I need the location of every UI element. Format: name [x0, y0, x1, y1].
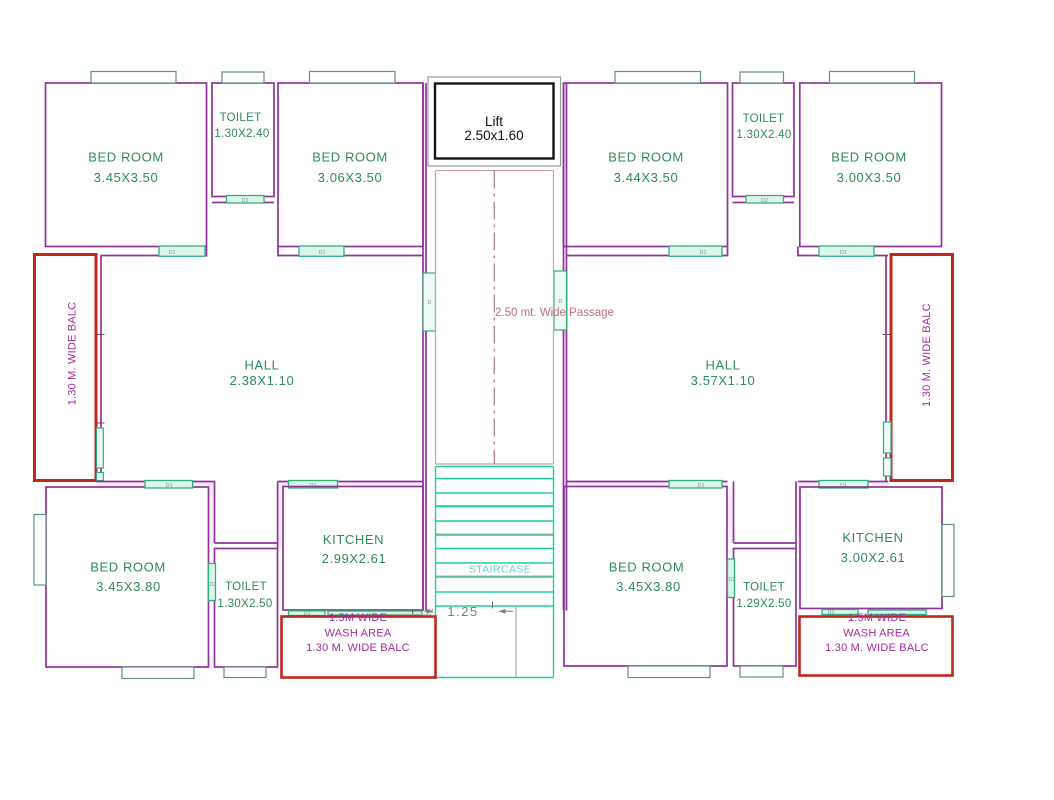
svg-text:WASH AREA: WASH AREA — [325, 628, 392, 640]
svg-text:2.99X2.61: 2.99X2.61 — [322, 551, 387, 566]
svg-text:TOILET: TOILET — [220, 112, 262, 124]
svg-text:3.45X3.50: 3.45X3.50 — [94, 170, 159, 185]
svg-text:D1: D1 — [318, 250, 325, 256]
svg-text:D2: D2 — [728, 577, 735, 583]
svg-text:1.30 M. WIDE BALC: 1.30 M. WIDE BALC — [306, 642, 410, 654]
svg-text:D1: D1 — [168, 250, 175, 256]
svg-text:1.30 M. WIDE BALC: 1.30 M. WIDE BALC — [921, 303, 933, 407]
svg-text:3.45X3.80: 3.45X3.80 — [96, 579, 161, 594]
svg-text:BED ROOM: BED ROOM — [90, 560, 166, 575]
svg-text:3.00X3.50: 3.00X3.50 — [837, 170, 902, 185]
svg-text:BED ROOM: BED ROOM — [609, 560, 685, 575]
svg-text:1.30X2.40: 1.30X2.40 — [214, 128, 269, 140]
svg-text:D2: D2 — [241, 198, 248, 204]
svg-text:1.5M WIDE: 1.5M WIDE — [848, 612, 906, 624]
svg-text:2.50 mt. Wide Passage: 2.50 mt. Wide Passage — [495, 307, 614, 319]
svg-text:3.45X3.80: 3.45X3.80 — [616, 579, 681, 594]
svg-text:STAIRCASE: STAIRCASE — [469, 564, 531, 576]
svg-text:1.30 M. WIDE BALC: 1.30 M. WIDE BALC — [67, 302, 79, 406]
svg-text:D2: D2 — [209, 582, 216, 588]
svg-text:Lift: Lift — [485, 114, 503, 129]
svg-text:TOILET: TOILET — [743, 113, 785, 125]
svg-text:HALL: HALL — [706, 358, 741, 373]
svg-text:BED ROOM: BED ROOM — [88, 150, 164, 165]
svg-text:D: D — [428, 300, 432, 306]
svg-text:3.57X1.10: 3.57X1.10 — [691, 373, 756, 388]
svg-text:KITCHEN: KITCHEN — [842, 530, 903, 545]
svg-text:D1: D1 — [840, 250, 847, 256]
svg-text:2.50x1.60: 2.50x1.60 — [464, 128, 523, 143]
svg-text:TOILET: TOILET — [225, 581, 267, 593]
svg-text:1.25: 1.25 — [447, 604, 478, 619]
svg-text:BED ROOM: BED ROOM — [831, 150, 907, 165]
svg-text:3.00X2.61: 3.00X2.61 — [841, 550, 906, 565]
svg-text:D1: D1 — [840, 483, 847, 489]
svg-text:1.30X2.40: 1.30X2.40 — [736, 129, 791, 141]
svg-text:1.5M WIDE: 1.5M WIDE — [329, 612, 387, 624]
svg-text:KITCHEN: KITCHEN — [323, 532, 384, 547]
svg-text:BED ROOM: BED ROOM — [608, 150, 684, 165]
svg-text:D2: D2 — [761, 198, 768, 204]
svg-text:HALL: HALL — [245, 358, 280, 373]
svg-text:3.06X3.50: 3.06X3.50 — [318, 170, 383, 185]
svg-text:BED ROOM: BED ROOM — [312, 150, 388, 165]
svg-text:D1: D1 — [697, 483, 704, 489]
svg-text:D2: D2 — [827, 610, 834, 616]
svg-text:1.30X2.50: 1.30X2.50 — [217, 598, 272, 610]
svg-text:D1: D1 — [165, 483, 172, 489]
svg-text:1M: 1M — [427, 609, 434, 615]
svg-text:3.44X3.50: 3.44X3.50 — [614, 170, 679, 185]
svg-text:TOILET: TOILET — [743, 582, 785, 594]
svg-text:2.38X1.10: 2.38X1.10 — [230, 373, 295, 388]
svg-text:1.30 M. WIDE BALC: 1.30 M. WIDE BALC — [825, 642, 929, 654]
svg-text:D: D — [559, 299, 563, 305]
svg-text:1.29X2.50: 1.29X2.50 — [736, 598, 791, 610]
svg-text:D1: D1 — [699, 250, 706, 256]
svg-text:WASH AREA: WASH AREA — [843, 628, 910, 640]
